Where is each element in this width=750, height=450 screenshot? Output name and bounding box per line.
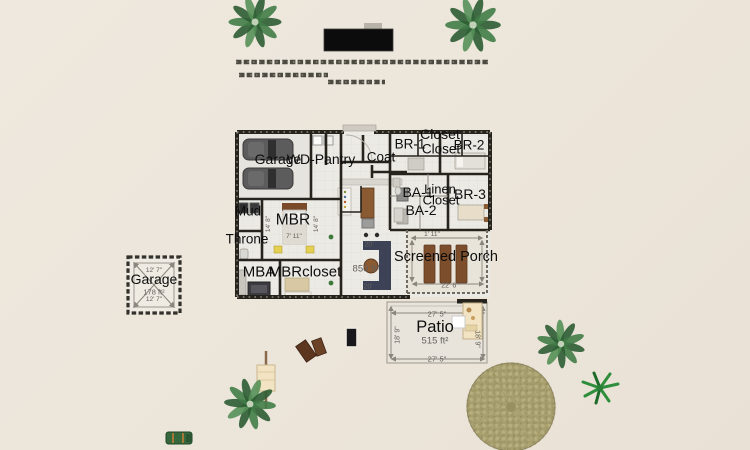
mbr-closet-dressers [285, 278, 311, 297]
porch-planks [424, 245, 467, 283]
patio-bar-counter [463, 303, 482, 339]
driveway-edging-strips [236, 62, 489, 82]
site-plan-drawing [0, 0, 750, 450]
floor-plan-canvas[interactable]: Garage WD-Pantry Coat Closet BR-1 Closet… [0, 0, 750, 450]
palm-tree-top-right [445, 0, 501, 53]
patio [387, 299, 487, 363]
pool-table [324, 29, 393, 51]
palm-tree-mid-right [531, 314, 591, 374]
agave-plant [583, 373, 618, 403]
palm-tree-bottom-left [213, 367, 286, 440]
pebble-mosaic-circle [467, 363, 555, 450]
round-table [364, 259, 378, 273]
detached-garage [128, 257, 180, 313]
throne-toilet [240, 249, 248, 259]
house-plant [329, 235, 334, 240]
front-step [343, 125, 376, 131]
green-vehicle [166, 432, 192, 444]
house-plant [329, 281, 334, 286]
framed-mat [346, 328, 357, 347]
door-mats [296, 328, 357, 362]
patio-table [452, 316, 465, 328]
palm-tree-top-left [229, 0, 282, 49]
